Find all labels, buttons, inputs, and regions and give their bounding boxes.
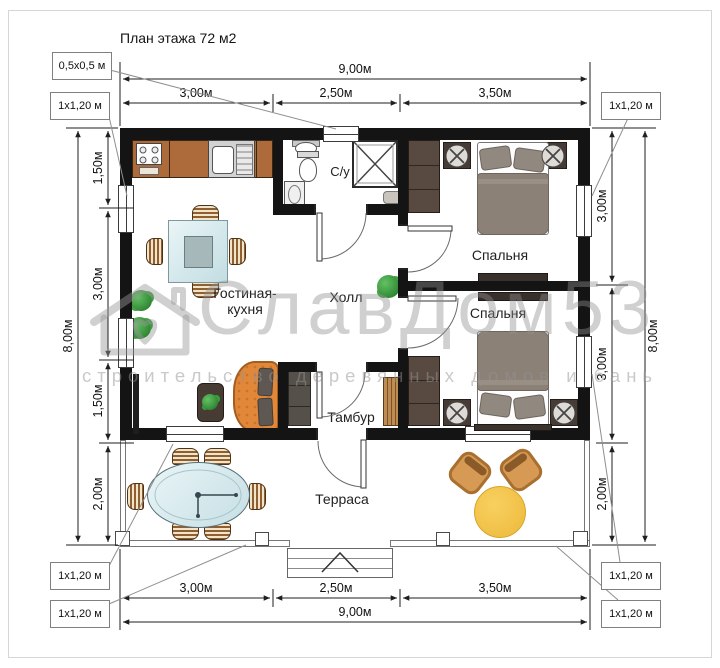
floor-plan-page: План этажа 72 м2	[0, 0, 720, 668]
terrace-rail-front-right	[390, 540, 590, 547]
terrace-rail-left	[120, 440, 126, 541]
washer-drum	[288, 185, 301, 204]
wardrobe-bedroom-top	[408, 140, 440, 213]
blanket	[477, 173, 549, 235]
dim-left-overall: 8,00м	[61, 320, 75, 353]
callout-window-left-upper: 1х1,20 м	[50, 92, 110, 120]
door-gap-terrace-exit	[316, 428, 368, 440]
window-bathroom-top	[323, 126, 359, 142]
callout-window-bottom-right-2: 1х1,20 м	[601, 600, 661, 628]
dining-chair	[229, 238, 246, 265]
dim-right-seg1: 3,00м	[595, 190, 609, 223]
entrance-steps	[287, 548, 393, 578]
wall-bathroom-left	[273, 140, 283, 206]
wardrobe-shelf	[409, 403, 439, 404]
toilet	[299, 158, 317, 182]
dim-top-overall: 9,00м	[339, 62, 372, 76]
dim-left-seg1: 1,50м	[91, 152, 105, 185]
drainboard	[236, 144, 253, 175]
pillow	[513, 147, 547, 173]
nightstand	[443, 399, 471, 426]
callout-window-bottom-left-1: 1х1,20 м	[50, 562, 110, 590]
terrace-post	[573, 531, 588, 546]
terrace-chair	[127, 483, 144, 510]
dim-bottom-seg3: 3,50м	[479, 581, 512, 595]
stove	[136, 143, 162, 165]
door-gap-bedroom-top	[398, 224, 408, 270]
window-bottom-living	[166, 426, 224, 442]
blanket-fold	[478, 179, 548, 184]
dining-chair	[146, 238, 163, 265]
terrace-post	[115, 531, 130, 546]
wardrobe-shelf	[409, 165, 439, 166]
shower-cabin	[352, 140, 398, 188]
dim-left-seg3: 1,50м	[91, 385, 105, 418]
step-line	[288, 558, 392, 559]
table-inner	[184, 236, 213, 268]
watermark-house-logo	[86, 280, 204, 358]
nightstand	[443, 142, 471, 169]
counter-divider	[256, 141, 257, 177]
room-label-bedroom-top: Спальня	[472, 247, 528, 263]
wardrobe-shelf	[289, 406, 310, 407]
pillow	[513, 394, 547, 420]
room-label-tambour: Тамбур	[327, 409, 375, 425]
stove-drawer	[139, 167, 159, 175]
terrace-rail-right	[584, 440, 590, 541]
room-label-terrace: Терраса	[315, 491, 369, 507]
window-right-bedroom-top	[576, 185, 592, 237]
pillow	[479, 145, 513, 171]
terrace-oval-table	[147, 462, 250, 528]
terrace-chair	[249, 483, 266, 510]
terrace-post	[436, 532, 450, 546]
dim-top-seg2: 2,50м	[320, 86, 353, 100]
sofa-cushion	[257, 398, 273, 427]
callout-window-bottom-right-1: 1х1,20 м	[601, 562, 661, 590]
counter-divider	[169, 141, 170, 177]
watermark-brand: СлавДом53	[198, 268, 656, 350]
dim-top-seg3: 3,50м	[479, 86, 512, 100]
dim-bottom-seg2: 2,50м	[320, 581, 353, 595]
callout-window-right-upper: 1х1,20 м	[601, 92, 661, 120]
plan-title: План этажа 72 м2	[120, 30, 236, 46]
step-line	[288, 568, 392, 569]
wardrobe-shelf	[409, 189, 439, 190]
terrace-round-table	[474, 486, 526, 538]
kitchen-sink	[212, 146, 234, 174]
callout-window-small: 0,5х0,5 м	[52, 52, 112, 80]
dim-right-seg3: 2,00м	[595, 478, 609, 511]
door-gap-bathroom	[314, 204, 368, 215]
window-left-upper	[118, 185, 134, 233]
dim-top-seg1: 3,00м	[180, 86, 213, 100]
terrace-post	[255, 532, 269, 546]
headboard	[474, 424, 552, 431]
pillow	[479, 392, 513, 418]
nightstand	[550, 399, 578, 426]
callout-window-bottom-left-2: 1х1,20 м	[50, 600, 110, 628]
dim-bottom-seg1: 3,00м	[180, 581, 213, 595]
room-label-bathroom: С/у	[330, 164, 350, 180]
toilet-tank	[297, 151, 319, 158]
dim-left-seg4: 2,00м	[91, 478, 105, 511]
coffee-table-plant	[202, 394, 218, 410]
dim-bottom-overall: 9,00м	[339, 605, 372, 619]
watermark-tagline: строительство деревянных домов и бань	[82, 365, 658, 387]
